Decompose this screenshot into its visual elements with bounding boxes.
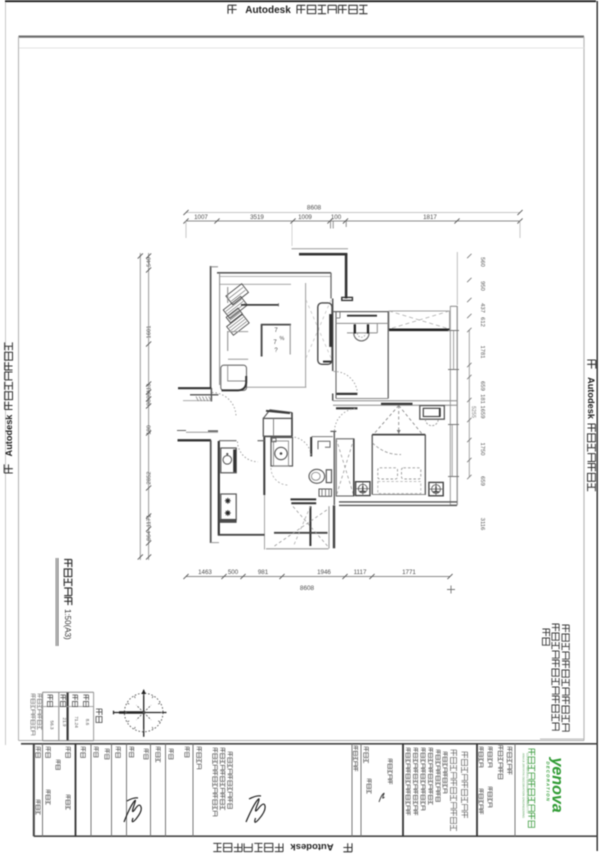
svg-text:180: 180 <box>147 425 153 435</box>
svg-text:100: 100 <box>331 214 342 221</box>
svg-text:1659: 1659 <box>479 406 485 419</box>
svg-text:1463: 1463 <box>198 569 212 576</box>
svg-text:1601: 1601 <box>147 326 153 339</box>
svg-text:1007: 1007 <box>194 214 208 221</box>
svg-text:8.6: 8.6 <box>85 719 90 726</box>
svg-text:437: 437 <box>479 303 485 313</box>
svg-text:Autodesk: Autodesk <box>245 5 291 16</box>
svg-text:CO.,LTD TEL:0551-65556666 FA: CO.,LTD TEL:0551-65556666 FAX:65557777 <box>526 753 530 814</box>
svg-text:659: 659 <box>479 381 485 391</box>
svg-text:Autodesk: Autodesk <box>586 377 596 420</box>
svg-text:500: 500 <box>228 569 239 576</box>
svg-text:1817: 1817 <box>423 214 437 221</box>
svg-text:1750: 1750 <box>479 443 485 456</box>
svg-text:21.9: 21.9 <box>62 718 67 727</box>
svg-text:1946: 1946 <box>317 569 331 576</box>
svg-text:981: 981 <box>258 569 269 576</box>
svg-text:612: 612 <box>479 317 485 327</box>
svg-text:8608: 8608 <box>307 205 322 212</box>
svg-text:56.3: 56.3 <box>50 721 55 730</box>
svg-text:Autodesk: Autodesk <box>4 414 14 457</box>
svg-text:3519: 3519 <box>250 214 264 221</box>
svg-text:1171: 1171 <box>147 515 153 527</box>
svg-text:1117: 1117 <box>354 569 367 576</box>
svg-text:3116: 3116 <box>479 518 485 530</box>
svg-text:540: 540 <box>147 257 153 267</box>
svg-text:1009: 1009 <box>298 214 312 221</box>
svg-text:DECORATION: DECORATION <box>546 762 551 803</box>
svg-text:5255: 5255 <box>470 406 476 418</box>
svg-text:8608: 8608 <box>300 585 315 592</box>
svg-text:1781: 1781 <box>479 346 485 359</box>
svg-text:2852: 2852 <box>147 472 153 485</box>
svg-text:1771: 1771 <box>402 569 416 576</box>
svg-text:Autodesk: Autodesk <box>290 841 334 852</box>
svg-text:560: 560 <box>479 257 485 267</box>
svg-text:950: 950 <box>479 281 485 291</box>
svg-text:98: 98 <box>147 399 153 405</box>
svg-text:659: 659 <box>479 476 485 486</box>
svg-text:864: 864 <box>147 530 153 540</box>
svg-text:ANHUI JINYATAI DECORATION ENGI: ANHUI JINYATAI DECORATION ENGINEERING <box>522 753 526 819</box>
svg-text:181: 181 <box>479 394 485 404</box>
svg-text:%: % <box>280 336 285 342</box>
svg-text:413: 413 <box>147 384 153 394</box>
svg-text:71.24: 71.24 <box>74 716 79 728</box>
svg-text:1:50(A3): 1:50(A3) <box>63 609 72 640</box>
svg-text:95: 95 <box>147 392 153 398</box>
